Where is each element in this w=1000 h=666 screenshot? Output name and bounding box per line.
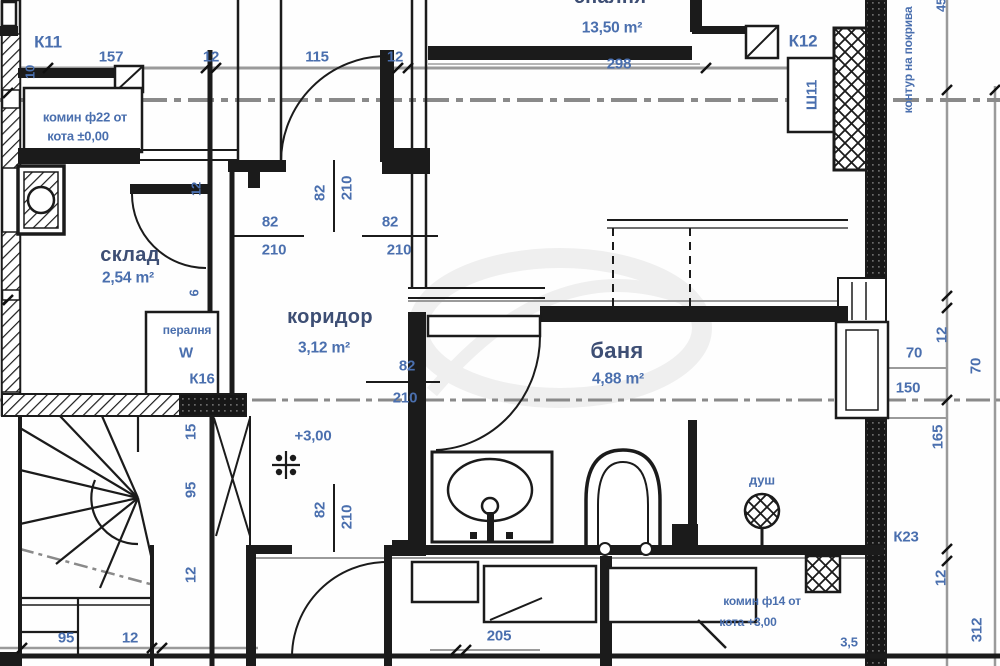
- label-k11: К11: [34, 34, 62, 51]
- level-mark-text: +3,00: [295, 429, 332, 444]
- door-width-right: 82: [382, 215, 398, 230]
- door-height-top: 210: [340, 176, 355, 200]
- dim-12-top-a: 12: [203, 50, 219, 65]
- label-shower: душ: [749, 474, 775, 487]
- room-area-bedroom: 13,50 m²: [582, 20, 642, 36]
- label-k16: К16: [189, 372, 214, 387]
- dim-12-right-b: 12: [934, 570, 949, 586]
- note-chimney14-line1: комин ф14 от: [723, 595, 801, 607]
- dim-298: 298: [607, 57, 631, 72]
- note-chimney22-line1: комин ф22 от: [43, 111, 127, 124]
- door-height-left: 210: [262, 243, 286, 258]
- dim-12-right-a: 12: [935, 327, 950, 343]
- shower-head: [745, 494, 779, 545]
- dim-157: 157: [99, 50, 123, 65]
- room-area-storage: 2,54 m²: [102, 270, 154, 286]
- floor-plan: К11 157 12 115 12 спалня 13,50 m² 298 К1…: [0, 0, 1000, 666]
- label-k12: К12: [789, 33, 818, 50]
- dim-70-right: 70: [969, 358, 984, 374]
- dim-3-5: 3,5: [840, 636, 857, 649]
- dim-10-left: 10: [24, 65, 37, 79]
- door-height-right: 210: [387, 243, 411, 258]
- door-width-lower: 82: [313, 502, 328, 518]
- door-height-lower: 210: [340, 505, 355, 529]
- door-width-left: 82: [262, 215, 278, 230]
- room-area-bathroom: 4,88 m²: [592, 371, 644, 387]
- dim-12-top-b: 12: [387, 50, 403, 65]
- fixtures: [272, 420, 779, 555]
- dim-12-storage: 12: [190, 182, 203, 196]
- door-width-top: 82: [313, 185, 328, 201]
- note-roof-contour: контур на покрива: [902, 7, 914, 114]
- dim-95-bottom: 95: [58, 631, 74, 646]
- dim-12-bottom: 12: [122, 631, 138, 646]
- label-washer-symbol: W: [179, 346, 193, 361]
- dim-150-window: 150: [896, 381, 920, 396]
- dim-12-stairs: 12: [184, 567, 199, 583]
- label-washer: пералня: [163, 324, 211, 336]
- sink: [432, 452, 552, 542]
- label-k23: К23: [893, 530, 918, 545]
- level-marker: [272, 451, 300, 479]
- dim-70-window: 70: [906, 346, 922, 361]
- door-width-bath: 82: [399, 359, 415, 374]
- note-chimney22-line2: кота ±0,00: [47, 130, 109, 143]
- dim-205: 205: [487, 629, 511, 644]
- dim-95-stairs: 95: [184, 482, 199, 498]
- dim-15-stairs: 15: [184, 424, 199, 440]
- floorplan-linework: [0, 0, 1000, 666]
- room-name-storage: склад: [100, 245, 159, 265]
- door-height-bath: 210: [393, 391, 417, 406]
- toilet: [586, 450, 660, 555]
- dim-6-storage: 6: [188, 289, 201, 296]
- room-name-bedroom: спалня: [574, 0, 647, 7]
- room-area-corridor: 3,12 m²: [298, 340, 350, 356]
- label-sh11: Ш11: [805, 80, 820, 110]
- dim-165: 165: [931, 425, 946, 449]
- stairs: [20, 415, 212, 666]
- dim-312: 312: [970, 618, 985, 642]
- note-chimney14-line2: кота +3,00: [719, 616, 776, 628]
- room-name-corridor: коридор: [287, 307, 373, 327]
- dim-115: 115: [305, 50, 329, 65]
- room-name-bathroom: баня: [590, 340, 643, 362]
- dim-45: 45: [935, 0, 948, 12]
